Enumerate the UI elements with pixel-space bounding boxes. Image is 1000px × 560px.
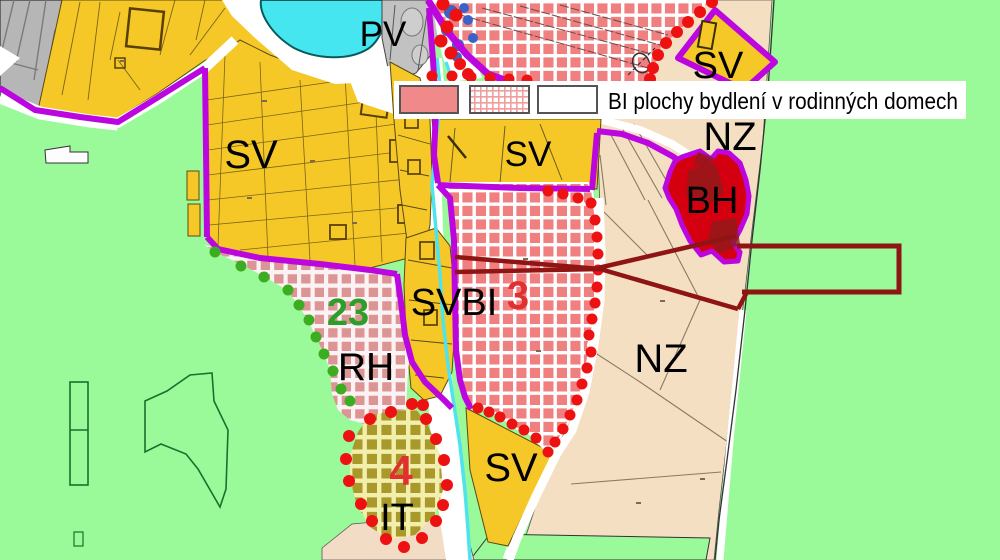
svg-text:IT: IT [380,497,414,539]
svg-text:NZ: NZ [634,337,687,381]
svg-text:23: 23 [327,292,369,334]
svg-text:SV: SV [505,135,552,174]
svg-text:RH: RH [338,346,394,389]
svg-text:NZ: NZ [703,115,756,159]
svg-text:4: 4 [389,447,413,494]
svg-text:SV: SV [224,133,278,177]
svg-text:SVBI: SVBI [411,282,498,324]
svg-text:SV: SV [693,45,744,87]
svg-text:SV: SV [484,446,538,490]
svg-text:PV: PV [360,15,407,54]
svg-text:3: 3 [507,274,529,318]
svg-text:BH: BH [686,180,739,222]
svg-text:BI plochy bydlení v rodinných: BI plochy bydlení v rodinných domech [608,88,958,114]
